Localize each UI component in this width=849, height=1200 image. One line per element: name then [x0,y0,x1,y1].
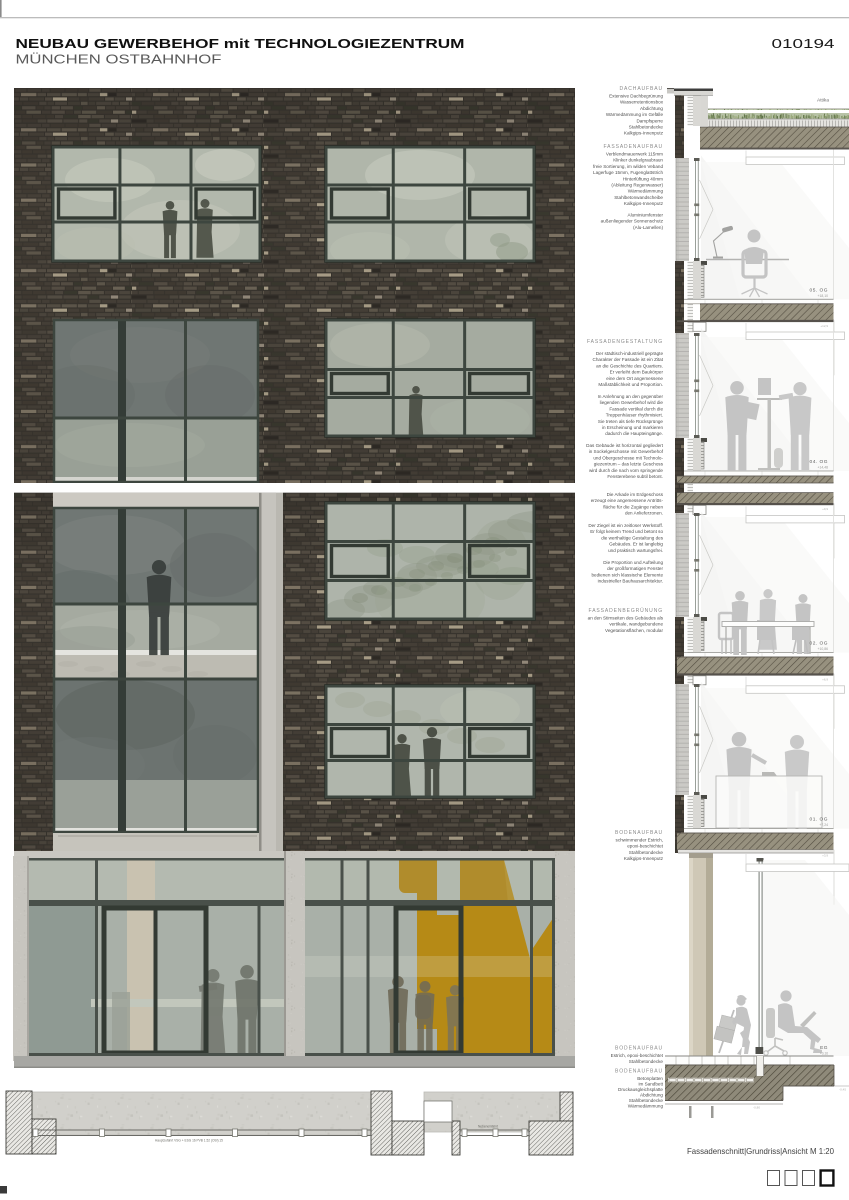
svg-text:Wärmedämmung im Gefälle: Wärmedämmung im Gefälle [606,112,664,117]
svg-text:in Erscheinung und markieren: in Erscheinung und markieren [602,425,663,430]
svg-text:EG: EG [820,1045,828,1051]
svg-text:und Obergeschosse mit Technolo: und Obergeschosse mit Technolo- [593,455,663,460]
svg-text:giezentrum – das letzte Gescho: giezentrum – das letzte Geschoss [594,462,664,467]
svg-text:wird durch die nach vorn sprin: wird durch die nach vorn springende [589,468,663,473]
svg-text:Attika: Attika [817,98,829,104]
svg-text:NEUBAU GEWERBEHOF mit TECHNOLO: NEUBAU GEWERBEHOF mit TECHNOLOGIEZENTRUM [16,37,465,51]
svg-text:Extensive Dachbegrünung: Extensive Dachbegrünung [609,94,663,99]
svg-text:Fensterebene subtil betont.: Fensterebene subtil betont. [607,474,663,479]
svg-text:Treppenhäuser rhythmisiert.: Treppenhäuser rhythmisiert. [606,413,663,418]
svg-text:Stahlbetonwandscheibe: Stahlbetonwandscheibe [614,195,663,200]
svg-text:Kalkgips-Innenputz: Kalkgips-Innenputz [624,131,664,136]
svg-text:04. OG: 04. OG [810,459,828,465]
svg-text:FASSADENGESTALTUNG: FASSADENGESTALTUNG [587,339,663,345]
svg-text:02. OG: 02. OG [810,641,828,647]
svg-text:DACHAUFBAU: DACHAUFBAU [620,86,663,92]
svg-text:Klinker dunkelgraubraun: Klinker dunkelgraubraun [613,158,663,163]
svg-text:Sie treten als tiefe Rücksprün: Sie treten als tiefe Rücksprünge [598,419,664,424]
svg-text:FASSADENAUFBAU: FASSADENAUFBAU [603,144,663,150]
svg-text:eine dem Ort angemessene: eine dem Ort angemessene [606,376,663,381]
svg-text:Fassadenschnitt|Grundriss|Ansi: Fassadenschnitt|Grundriss|Ansicht M 1:20 [687,1146,834,1156]
svg-text:BODENAUFBAU: BODENAUFBAU [615,1069,663,1075]
svg-text:+18,10: +18,10 [818,294,829,298]
svg-text:Betonplatten: Betonplatten [637,1076,663,1081]
svg-text:erzeugt eine angemessene Antri: erzeugt eine angemessene Antritts- [591,498,664,503]
svg-text:Er verleiht dem Baukörper: Er verleiht dem Baukörper [610,370,664,375]
svg-text:(Ableitung Regenwasser): (Ableitung Regenwasser) [611,183,663,188]
svg-text:(Alu-Lamellen): (Alu-Lamellen) [633,225,663,230]
svg-text:Hauptzufahrt VSG + ESG 16 PVB: Hauptzufahrt VSG + ESG 16 PVB 1.52 (OSI)… [155,1139,223,1143]
svg-text:Lagerfuge 15mm, Fugenglattstri: Lagerfuge 15mm, Fugenglattstrich [593,170,663,175]
svg-text:Fassade vertikal durch die: Fassade vertikal durch die [609,406,663,411]
svg-text:der großformatigen Fenster: der großformatigen Fenster [607,566,663,571]
svg-text:Druckausgleichsplatte: Druckausgleichsplatte [618,1087,663,1092]
svg-text:an die Geschichte des Quartier: an die Geschichte des Quartiers. [596,363,663,368]
svg-text:Abdichtung: Abdichtung [640,1093,663,1098]
svg-text:Er folgt keinem Trend und beto: Er folgt keinem Trend und betont so [590,529,663,534]
svg-text:Aluminiumfenster: Aluminiumfenster [628,213,664,218]
svg-text:Verblendmauerwerk 115mm: Verblendmauerwerk 115mm [606,152,663,157]
svg-text:+7,24: +7,24 [819,823,828,827]
svg-text:Stahlbetondecke: Stahlbetondecke [629,1098,664,1103]
svg-text:industrieller Bauhausarchitekt: industrieller Bauhausarchitektur. [598,579,663,584]
svg-text:Stahlbetondecke: Stahlbetondecke [629,125,664,130]
svg-text:vertikale, wandgebundene: vertikale, wandgebundene [609,622,663,627]
svg-text:Abdichtung: Abdichtung [640,106,663,111]
svg-text:den Anlieferzonen.: den Anlieferzonen. [625,511,663,516]
svg-text:+3,9: +3,9 [822,853,828,857]
svg-text:außenliegender Sonnenschutz: außenliegender Sonnenschutz [601,219,664,224]
svg-text:schwimmender Estrich,: schwimmender Estrich, [616,838,663,843]
svg-text:liegenden Gewerbehof wird die: liegenden Gewerbehof wird die [600,400,664,405]
svg-text:05. OG: 05. OG [810,287,828,293]
svg-text:an den Stirnseiten des Gebäude: an den Stirnseiten des Gebäudes als [588,616,664,621]
svg-text:Stahlbetondecke: Stahlbetondecke [629,1059,664,1064]
svg-text:Der Ziegel ist ein zeitloser W: Der Ziegel ist ein zeitloser Werkstoff. [588,523,663,528]
svg-text:Kalkgips-Innenputz: Kalkgips-Innenputz [624,201,664,206]
svg-text:und praktisch wartungsfrei.: und praktisch wartungsfrei. [608,548,663,553]
svg-text:Hinterlüftung 40mm: Hinterlüftung 40mm [623,176,663,181]
svg-text:Nebeneinfahrt: Nebeneinfahrt [478,1125,498,1129]
svg-text:-0,45: -0,45 [839,1088,846,1092]
svg-text:die werthaltige Gestaltung des: die werthaltige Gestaltung des [601,535,664,540]
svg-text:+0,16: +0,16 [820,1052,828,1056]
svg-text:Wärmedämmung: Wärmedämmung [628,189,664,194]
svg-text:+14,48: +14,48 [818,466,829,470]
svg-text:BODENAUFBAU: BODENAUFBAU [615,1046,663,1052]
svg-text:Der städtisch-industriell gepr: Der städtisch-industriell geprägte [596,351,664,356]
svg-text:bedienen sich klassische Eleme: bedienen sich klassische Elemente [592,572,664,577]
svg-text:+9,9: +9,9 [822,507,828,511]
svg-text:Wasserretentionsbox: Wasserretentionsbox [620,100,664,105]
svg-text:Dampfsperre: Dampfsperre [636,118,663,123]
svg-text:BODENAUFBAU: BODENAUFBAU [615,830,663,836]
svg-text:+12,9: +12,9 [820,324,828,328]
svg-text:+6,9: +6,9 [822,677,828,681]
svg-text:MÜNCHEN OSTBAHNHOF: MÜNCHEN OSTBAHNHOF [16,53,222,67]
svg-text:Stahlbetondecke: Stahlbetondecke [629,850,664,855]
svg-text:+10,86: +10,86 [818,647,829,651]
svg-text:Gebäudes. Er ist langlebig: Gebäudes. Er ist langlebig [609,542,663,547]
svg-text:-0,80: -0,80 [753,1106,760,1110]
svg-text:Das Gebäude ist horizontal geg: Das Gebäude ist horizontal gegliedert [586,443,664,448]
svg-text:Kalkgips-Innenputz: Kalkgips-Innenputz [624,856,664,861]
svg-text:fläche für die Zugänge neben: fläche für die Zugänge neben [603,504,663,509]
svg-text:in Sockelgeschosse mit Gewerbe: in Sockelgeschosse mit Gewerbehof [589,449,664,454]
svg-text:Wärmedämmung: Wärmedämmung [628,1104,664,1109]
svg-text:Maßstäblichkeit und Proportion: Maßstäblichkeit und Proportion. [598,382,663,387]
svg-text:freie Sortierung, im wilden Ve: freie Sortierung, im wilden Veband [593,164,663,169]
svg-text:im Sandbett: im Sandbett [638,1082,663,1087]
svg-text:dadurch die Haupteingänge.: dadurch die Haupteingänge. [605,431,663,436]
svg-text:FASSADENBEGRÜNUNG: FASSADENBEGRÜNUNG [589,607,663,614]
svg-text:epoxi-beschichtet: epoxi-beschichtet [627,844,663,849]
svg-text:Vegetationsflächen, modular: Vegetationsflächen, modular [605,628,663,633]
svg-text:Die Arkade im Erdgeschoss: Die Arkade im Erdgeschoss [607,492,664,497]
svg-text:Charakter der Fassade ist ein: Charakter der Fassade ist ein Zitat [593,357,664,362]
svg-text:Estrich, epoxi-beschichtet: Estrich, epoxi-beschichtet [611,1053,664,1058]
svg-text:010194: 010194 [772,37,835,51]
svg-text:Die Proportion und Aufteilung: Die Proportion und Aufteilung [603,560,663,565]
svg-text:In Anlehnung an den gegenüber: In Anlehnung an den gegenüber [598,394,664,399]
svg-text:01. OG: 01. OG [810,817,828,823]
